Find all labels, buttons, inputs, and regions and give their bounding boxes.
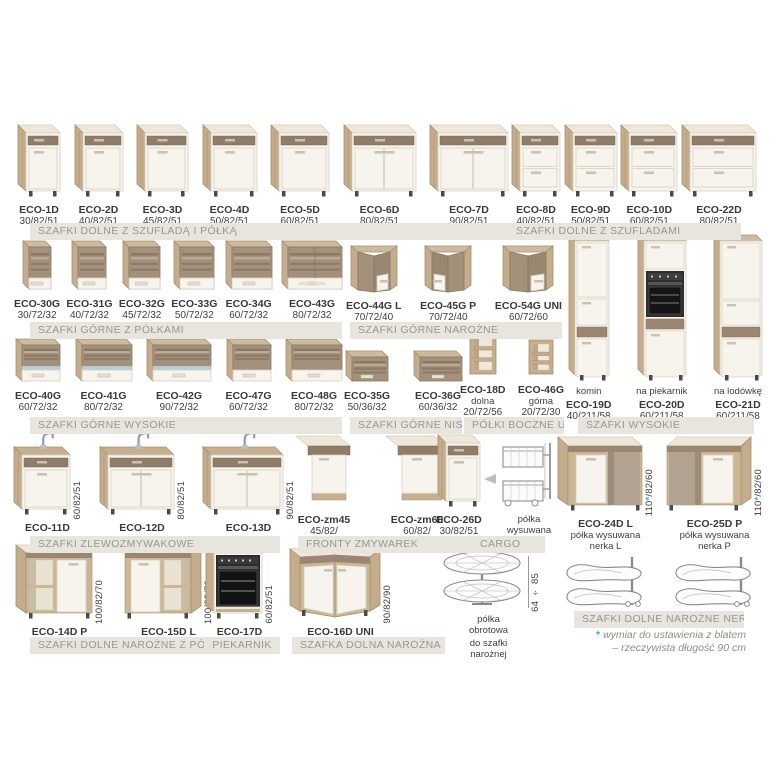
section-products-13: 60/82/51ECO-17D [204,548,284,638]
product-card-ECO-6D: ECO-6D80/82/51 [342,128,418,228]
section-bar: SZAFKI GÓRNE WYSOKIE [30,417,342,434]
section-products-1: ECO-8D40/82/51ECO-9D50/82/51ECO-10D60/82… [510,128,758,228]
cabinet-drawing-icon [680,123,758,202]
cabinet-drawing-icon [567,233,611,386]
product-card-ECO-17D: 60/82/51ECO-17D [204,548,275,638]
cabinet-illustration [636,238,688,386]
product-name: ECO-20D [639,399,685,411]
product-name: ECO-24D L [578,518,633,530]
cabinet-illustration [16,128,62,202]
product-card-ECO-36G: ECO-36G60/36/32 [412,342,464,414]
product-note: na piekarnik [636,386,687,397]
product-note2: nerka L [590,541,622,552]
product-card-ECO-47G: ECO-47G60/72/32 [225,342,273,414]
product-card-ECO-19D: kominECO-19D40/211/58 [566,238,612,423]
section-products-4: kominECO-19D40/211/58na piekarnikECO-20D… [566,238,764,423]
product-dimensions: 50/36/32 [348,402,387,414]
cabinet-illustration [225,342,273,388]
product-name: ECO-5D [280,204,320,216]
section-products-6: ECO-35G50/36/32ECO-36G60/36/32 [344,342,464,414]
cabinet-drawing-icon [73,123,125,202]
kidney-shelf-icon [560,555,652,612]
cabinet-drawing-icon [172,239,216,296]
section-products-9: ECO-zm4545/82/ECO-zm6060/82/ [296,438,448,538]
product-card-ECO-30G: ECO-30G30/72/32 [14,244,60,322]
cabinet-illustration: 64 ÷ 85 [436,550,541,612]
cabinet-illustration [145,342,213,388]
product-card-ECO-1D: ECO-1D30/82/51 [16,128,62,228]
side-dimensions: 60/82/51 [265,577,275,624]
section-products-10: ECO-26D30/82/51półka wysuwana [436,438,560,538]
section-products-12: 100/82/70ECO-14D P100/82/70ECO-15D L [14,548,214,638]
section-products-0: ECO-1D30/82/51ECO-2D40/82/51ECO-3D45/82/… [16,128,510,228]
cabinet-drawing-icon [556,435,644,516]
cabinet-illustration [14,342,62,388]
cabinet-illustration [619,128,679,202]
cabinet-illustration [172,244,216,296]
cabinet-illustration: 100/82/70 [14,548,105,624]
section-products-5: ECO-40G60/72/32ECO-41G80/72/32ECO-42G90/… [14,342,344,414]
cabinet-drawing-icon [563,123,619,202]
product-note: górna [529,396,553,407]
product-dimensions: 30/72/32 [18,310,57,322]
product-name: ECO-40G [15,390,61,402]
cabinet-drawing-icon [21,239,53,296]
product-card-ECO-20D: na piekarnikECO-20D60/211/58 [636,238,688,423]
cabinet-illustration: 90/82/51 [201,436,296,520]
product-card-ECO-33G: ECO-33G50/72/32 [171,244,217,322]
cabinet-drawing-icon [527,337,555,382]
cabinet-illustration [567,238,611,386]
product-name: ECO-47G [225,390,271,402]
product-name: ECO-22D [696,204,742,216]
product-name: ECO-44G L [346,300,401,312]
cabinet-illustration [501,438,557,512]
section-bar: SZAFKI GÓRNE NAROŻNE [350,322,562,339]
cabinet-illustration: 110*/82/60 [556,440,655,516]
cabinet-illustration [421,244,475,298]
cabinet-illustration [680,128,758,202]
product-card-ECO-43G: ECO-43G80/72/32 [280,244,344,322]
kidney-shelf-icon [669,555,761,612]
product-card-ECO-12D: 80/82/51ECO-12D [98,436,187,534]
product-card-item: 64 ÷ 85półka obrotowado szafki narożnej [436,550,541,660]
cabinet-illustration [468,334,498,382]
cabinet-illustration [284,342,344,388]
cabinet-illustration [135,128,190,202]
cabinet-illustration [121,244,162,296]
dimension-line [528,556,529,608]
product-name: ECO-2D [79,204,119,216]
product-name: ECO-10D [627,204,673,216]
section-bar: FRONTY ZMYWAREK [298,536,448,553]
product-card-ECO-45G-P: ECO-45G P70/72/40 [420,244,476,324]
product-dimensions: 80/72/32 [84,402,123,414]
product-card-ECO-3D: ECO-3D45/82/51 [135,128,190,228]
product-card-ECO-32G: ECO-32G45/72/32 [119,244,165,322]
cabinet-drawing-icon [70,239,108,296]
side-dimensions: 80/82/51 [177,473,187,520]
product-name: ECO-43G [289,298,335,310]
product-note: półka wysuwana [571,530,641,541]
product-name: ECO-7D [449,204,489,216]
product-card-item: półka wysuwana [498,438,560,536]
cabinet-drawing-icon [74,337,134,388]
product-name: ECO-45G P [420,300,476,312]
section-bar: CARGO [448,536,545,553]
section-bar: PÓŁKI BOCZNE UNI [464,417,564,434]
cabinet-drawing-icon [145,337,213,388]
cabinet-illustration [74,342,134,388]
section-products-15: 64 ÷ 85półka obrotowado szafki narożnej [436,550,560,660]
section-products-3: ECO-44G L70/72/40ECO-45G P70/72/40ECO-54… [346,244,562,324]
cabinet-illustration [563,128,619,202]
product-name: ECO-33G [171,298,217,310]
cabinet-drawing-icon [224,239,274,296]
cabinet-illustration [201,128,259,202]
product-name: ECO-13D [226,522,272,534]
side-dimensions: 110*/82/60 [645,461,655,516]
product-card-ECO-35G: ECO-35G50/36/32 [344,342,390,414]
product-name: ECO-54G UNI [495,300,562,312]
product-card-ECO-54G-UNI: ECO-54G UNI60/72/60 [495,244,562,324]
cabinet-illustration: 80/82/51 [98,436,187,520]
product-card-ECO-zm45: ECO-zm4545/82/ [296,438,352,538]
product-name: ECO-48G [291,390,337,402]
product-card-ECO-15D-L: 100/82/70ECO-15D L [123,548,214,638]
product-card-ECO-48G: ECO-48G80/72/32 [284,342,344,414]
cabinet-drawing-icon [412,349,464,388]
cabinet-drawing-icon [123,543,203,624]
product-card-ECO-44G-L: ECO-44G L70/72/40 [346,244,401,324]
product-card-ECO-25D-P: 110*/82/60ECO-25D Ppółka wysuwananerka P [665,440,764,612]
product-card-ECO-11D: 60/82/51ECO-11D [12,436,83,534]
section-products-14: 90/82/90ECO-16D UNI [288,548,438,638]
cabinet-illustration [347,244,401,298]
cabinet-drawing-icon [296,433,352,512]
side-dimensions: 100/82/70 [95,572,105,624]
cabinet-illustration [269,128,331,202]
cabinet-illustration [70,244,108,296]
product-name: ECO-zm45 [298,514,351,526]
cabinet-drawing-icon [269,123,331,202]
product-card-ECO-46G: ECO-46Ggórna20/72/30 [518,334,564,419]
cabinet-illustration [436,438,482,512]
cabinet-illustration [73,128,125,202]
cabinet-drawing-icon [712,233,764,386]
product-card-ECO-41G: ECO-41G80/72/32 [74,342,134,414]
product-dimensions: 60/72/32 [229,402,268,414]
product-dimensions: 40/72/32 [70,310,109,322]
section-products-8: 60/82/51ECO-11D80/82/51ECO-12D90/82/51EC… [12,436,296,534]
cabinet-illustration [280,244,344,296]
section-bar: SZAFKI GÓRNE NISKIE [350,417,462,434]
product-dimensions: 60/72/32 [229,310,268,322]
product-caption2: do szafki narożnej [458,638,520,660]
cabinet-drawing-icon [510,123,562,202]
arrow-left-icon [484,474,496,484]
section-bar: SZAFKI DOLNE Z SZUFLADĄ I PÓŁKĄ [30,223,508,240]
product-caption: półka obrotowa [458,614,520,636]
side-dimensions: 110*/82/60 [754,461,764,516]
product-card-ECO-9D: ECO-9D50/82/51 [563,128,619,228]
product-card-ECO-34G: ECO-34G60/72/32 [224,244,274,322]
product-card-ECO-21D: na lodówkęECO-21D60/211/58 [712,238,764,423]
cabinet-illustration [499,244,557,298]
side-dimensions: 64 ÷ 85 [531,565,541,612]
product-name: ECO-42G [156,390,202,402]
cabinet-drawing-icon [636,233,688,386]
cabinet-illustration [412,342,464,388]
section-bar: SZAFKI WYSOKIE [578,417,754,434]
cabinet-drawing-icon [342,123,418,202]
product-name: ECO-9D [571,204,611,216]
footnote-line1: * wymiar do ustawienia z blatem [596,629,746,642]
product-dimensions: 80/72/32 [295,402,334,414]
product-card-ECO-13D: 90/82/51ECO-13D [201,436,296,534]
product-name: ECO-12D [119,522,165,534]
cabinet-drawing-icon [201,123,259,202]
cabinet-illustration [510,128,562,202]
cabinet-drawing-icon [135,123,190,202]
section-bar: SZAFKI GÓRNE Z PÓŁKAMI [30,322,342,339]
product-card-ECO-42G: ECO-42G90/72/32 [145,342,213,414]
section-products-11: 110*/82/60ECO-24D Lpółka wysuwananerka L… [556,440,764,612]
product-card-ECO-10D: ECO-10D60/82/51 [619,128,679,228]
section-products-7: ECO-18Ddolna20/72/56ECO-46Ggórna20/72/30 [460,334,564,419]
product-name: ECO-1D [19,204,59,216]
cabinet-drawing-icon [284,337,344,388]
cabinet-illustration [428,128,510,202]
cabinet-illustration [21,244,53,296]
section-products-2: ECO-30G30/72/32ECO-31G40/72/32ECO-32G45/… [14,244,344,322]
cabinet-illustration: 60/82/51 [12,436,83,520]
product-dimensions: 50/72/32 [175,310,214,322]
product-note2: nerka P [698,541,731,552]
cabinet-drawing-icon [665,435,753,516]
product-name: ECO-46G [518,384,564,396]
product-dimensions: 90/72/32 [160,402,199,414]
cabinet-drawing-icon [14,543,94,624]
product-name: ECO-11D [25,522,70,534]
cargo-arrow [484,438,496,484]
product-note: na lodówkę [714,386,762,397]
product-name: ECO-31G [66,298,112,310]
product-name: ECO-3D [143,204,183,216]
cabinet-illustration: 100/82/70 [123,548,214,624]
cabinet-drawing-icon [347,239,401,298]
product-note: półka wysuwana [680,530,750,541]
product-card-ECO-4D: ECO-4D50/82/51 [201,128,259,228]
cabinet-illustration: 90/82/90 [288,548,393,624]
cabinet-drawing-icon [16,123,62,202]
product-name: ECO-32G [119,298,165,310]
product-name: ECO-41G [80,390,126,402]
section-bar: SZAFKA DOLNA NAROŻNA [292,637,445,654]
cabinet-drawing-icon [288,543,382,624]
product-card-ECO-16D-UNI: 90/82/90ECO-16D UNI [288,548,393,638]
product-dimensions: 60/72/32 [19,402,58,414]
product-dimensions: 60/36/32 [419,402,458,414]
product-card-ECO-14D-P: 100/82/70ECO-14D P [14,548,105,638]
cabinet-drawing-icon [619,123,679,202]
side-dimensions: 90/82/90 [383,577,393,624]
section-bar: SZAFKI DOLNE NAROŻNE Z PÓŁKĄ [30,637,204,654]
product-dimensions: 80/72/32 [293,310,332,322]
cabinet-illustration [344,342,390,388]
cabinet-drawing-icon [436,433,482,512]
product-name: ECO-26D [436,514,482,526]
cabinet-illustration [712,238,764,386]
product-card-ECO-7D: ECO-7D90/82/51 [428,128,510,228]
cabinet-drawing-icon [14,337,62,388]
product-name: ECO-21D [715,399,761,411]
product-caption: półka wysuwana [498,514,560,536]
cabinet-illustration [342,128,418,202]
footnote-line2: – rzeczywista długość 90 cm [596,642,746,655]
cabinet-drawing-icon [499,239,557,298]
cabinet-illustration [527,334,555,382]
product-dimensions: 45/72/32 [122,310,161,322]
cabinet-drawing-icon [436,545,524,612]
cabinet-drawing-icon [421,239,475,298]
product-name: ECO-18D [460,384,506,396]
product-name: ECO-36G [415,390,461,402]
product-name: ECO-6D [360,204,400,216]
product-name: ECO-25D P [687,518,742,530]
product-name: ECO-35G [344,390,390,402]
product-name: ECO-30G [14,298,60,310]
section-bar: SZAFKI DOLNE NAROŻNE NERKI [574,611,744,628]
product-card-ECO-8D: ECO-8D40/82/51 [510,128,562,228]
product-note: dolna [471,396,494,407]
side-dimensions: 90/82/51 [286,473,296,520]
cabinet-drawing-icon [501,439,557,512]
product-card-ECO-18D: ECO-18Ddolna20/72/56 [460,334,506,419]
section-bar: SZAFKI DOLNE Z SZUFLADAMI [508,223,741,240]
cabinet-drawing-icon [280,239,344,296]
product-card-ECO-2D: ECO-2D40/82/51 [73,128,125,228]
cabinet-drawing-icon [204,543,264,624]
cabinet-illustration: 110*/82/60 [665,440,764,516]
cabinet-illustration: 60/82/51 [204,548,275,624]
product-name: ECO-8D [516,204,556,216]
cabinet-drawing-icon [344,349,390,388]
footnote: * wymiar do ustawienia z blatem – rzeczy… [596,629,746,655]
cabinet-illustration [224,244,274,296]
cabinet-drawing-icon [98,431,176,520]
product-card-ECO-40G: ECO-40G60/72/32 [14,342,62,414]
cabinet-drawing-icon [12,431,72,520]
cabinet-drawing-icon [201,431,285,520]
product-card-ECO-22D: ECO-22D80/82/51 [680,128,758,228]
section-bar: SZAFKI ZLEWOZMYWAKOWE [30,536,280,553]
product-note: komin [576,386,601,397]
cabinet-drawing-icon [121,239,162,296]
product-name: ECO-34G [226,298,272,310]
product-name: ECO-19D [566,399,612,411]
product-card-ECO-31G: ECO-31G40/72/32 [66,244,112,322]
product-card-ECO-24D-L: 110*/82/60ECO-24D Lpółka wysuwananerka L [556,440,655,612]
side-dimensions: 60/82/51 [73,473,83,520]
cabinet-drawing-icon [428,123,510,202]
product-card-ECO-5D: ECO-5D60/82/51 [269,128,331,228]
asterisk-icon: * [596,629,600,641]
cabinet-illustration [296,438,352,512]
product-name: ECO-4D [210,204,250,216]
product-card-ECO-26D: ECO-26D30/82/51 [436,438,482,538]
section-bar: PIEKARNIK [204,637,280,654]
catalog-page: ECO-1D30/82/51ECO-2D40/82/51ECO-3D45/82/… [0,0,770,770]
cabinet-drawing-icon [225,337,273,388]
